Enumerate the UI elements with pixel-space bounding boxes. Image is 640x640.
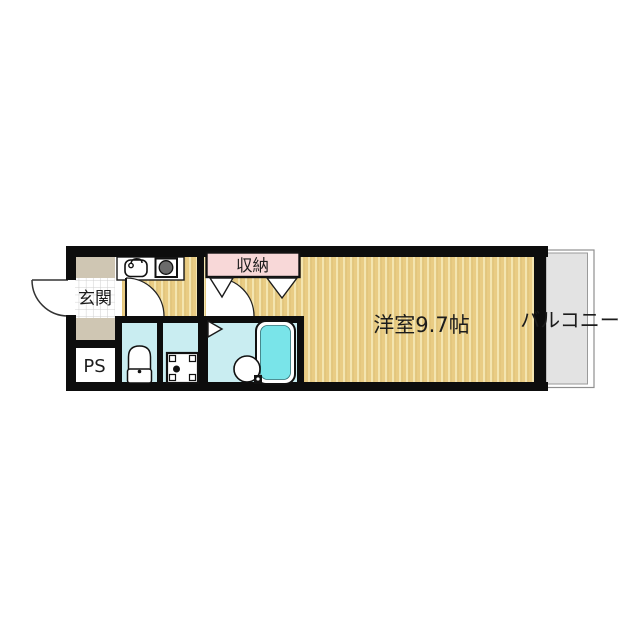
balcony-label: バルコニー (520, 308, 620, 332)
floor-plan-page: 玄関 PS 収納 洋室9.7帖 バルコニー (0, 0, 640, 640)
floor-plan-canvas: 玄関 PS 収納 洋室9.7帖 バルコニー (0, 0, 640, 640)
shoe-cabinet-block-top (75, 257, 115, 278)
wall-top (66, 246, 548, 257)
wall-left-upper (66, 246, 76, 280)
pipe-space-label: PS (83, 356, 105, 377)
shoe-cabinet-block-bottom (75, 318, 115, 340)
washing-machine-icon (167, 353, 198, 383)
bathtub-icon (256, 321, 295, 384)
kitchen-sink-icon (125, 259, 147, 277)
wall-hall-room (197, 257, 204, 323)
closet-label: 収納 (236, 256, 269, 275)
main-room-label: 洋室9.7帖 (373, 313, 469, 337)
wall-bath-left (198, 316, 208, 382)
kitchen-counter (117, 257, 184, 280)
toilet-icon (128, 346, 152, 383)
wall-ps-top (66, 340, 122, 348)
entrance-label: 玄関 (78, 289, 112, 309)
wall-bath-right (297, 316, 304, 382)
wall-left-lower (66, 315, 76, 391)
wall-ps-toilet (115, 316, 122, 382)
wall-toilet-laundry (157, 323, 163, 382)
stove-icon (156, 259, 178, 278)
